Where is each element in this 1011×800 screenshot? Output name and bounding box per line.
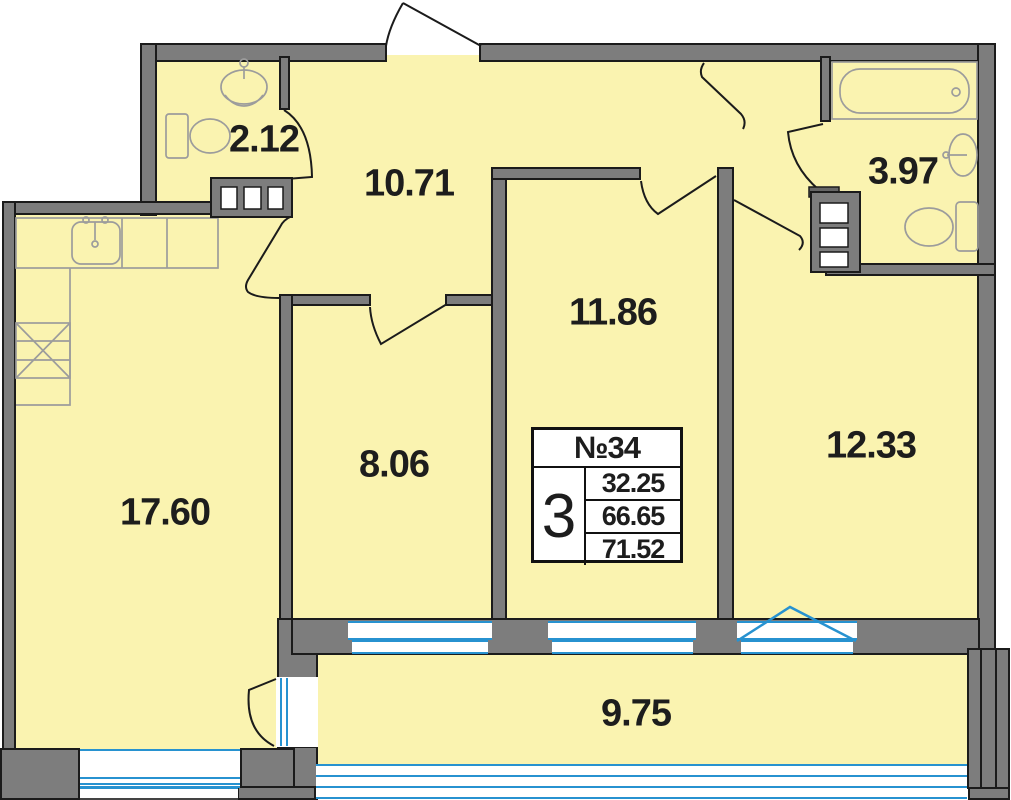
kitchen-counter-dividers bbox=[122, 218, 167, 268]
kitchen-opening-break bbox=[246, 216, 292, 298]
plan-linework bbox=[0, 0, 1011, 800]
kitchen-stove-cross bbox=[16, 323, 70, 378]
bathroom-toilet-bowl bbox=[905, 208, 953, 246]
unit-room-count: 3 bbox=[534, 468, 584, 565]
room-label-bedroom-middle: 11.86 bbox=[569, 292, 657, 335]
floor-plan: 2.12 10.71 3.97 11.86 8.06 17.60 12.33 9… bbox=[0, 0, 1011, 800]
room-label-balcony: 9.75 bbox=[601, 693, 671, 736]
bedroom-right-door bbox=[734, 200, 803, 250]
wc-toilet-bowl bbox=[190, 119, 230, 153]
room-label-wc: 2.12 bbox=[229, 119, 299, 162]
kitchen-counter-side bbox=[16, 268, 70, 405]
unit-area-total: 71.52 bbox=[586, 532, 680, 565]
vent-shaft-bath-cell bbox=[820, 203, 848, 223]
wc-toilet-tank bbox=[166, 114, 188, 158]
unit-area-living: 32.25 bbox=[586, 468, 680, 499]
room-small-door bbox=[370, 304, 447, 344]
kitchen-counter bbox=[16, 218, 218, 268]
kitchen-sink bbox=[72, 222, 120, 264]
vent-shaft-wc-cell bbox=[244, 187, 261, 209]
unit-info-box: №34 3 32.25 66.65 71.52 bbox=[531, 427, 683, 563]
room-label-hallway: 10.71 bbox=[364, 163, 454, 206]
hall-opening-break bbox=[701, 63, 745, 129]
vent-shaft-wc-cell bbox=[268, 187, 283, 209]
balcony-slide-door-symbol bbox=[737, 607, 856, 641]
vent-shaft-bath-cell bbox=[820, 252, 848, 267]
kitchen-balcony-door-swing bbox=[249, 679, 276, 746]
unit-number: №34 bbox=[534, 430, 680, 468]
room-label-bedroom-right: 12.33 bbox=[826, 425, 916, 468]
bathtub-inner bbox=[840, 69, 969, 113]
kitchen-sink-tap-end bbox=[92, 241, 98, 247]
wc-sink-tap bbox=[240, 59, 248, 67]
vent-shaft-bath-cell bbox=[820, 228, 848, 247]
room-label-kitchen-living: 17.60 bbox=[120, 492, 210, 535]
bathroom-door bbox=[788, 124, 823, 190]
room-label-bathroom: 3.97 bbox=[868, 151, 938, 194]
bedroom-middle-door bbox=[641, 176, 716, 214]
bathroom-toilet-tank bbox=[956, 202, 978, 251]
vent-shaft-wc-cell bbox=[221, 187, 237, 209]
unit-area-usable: 66.65 bbox=[586, 499, 680, 532]
entrance-door bbox=[386, 3, 481, 46]
room-label-room-small: 8.06 bbox=[359, 444, 429, 487]
bathtub-drain bbox=[952, 88, 960, 96]
